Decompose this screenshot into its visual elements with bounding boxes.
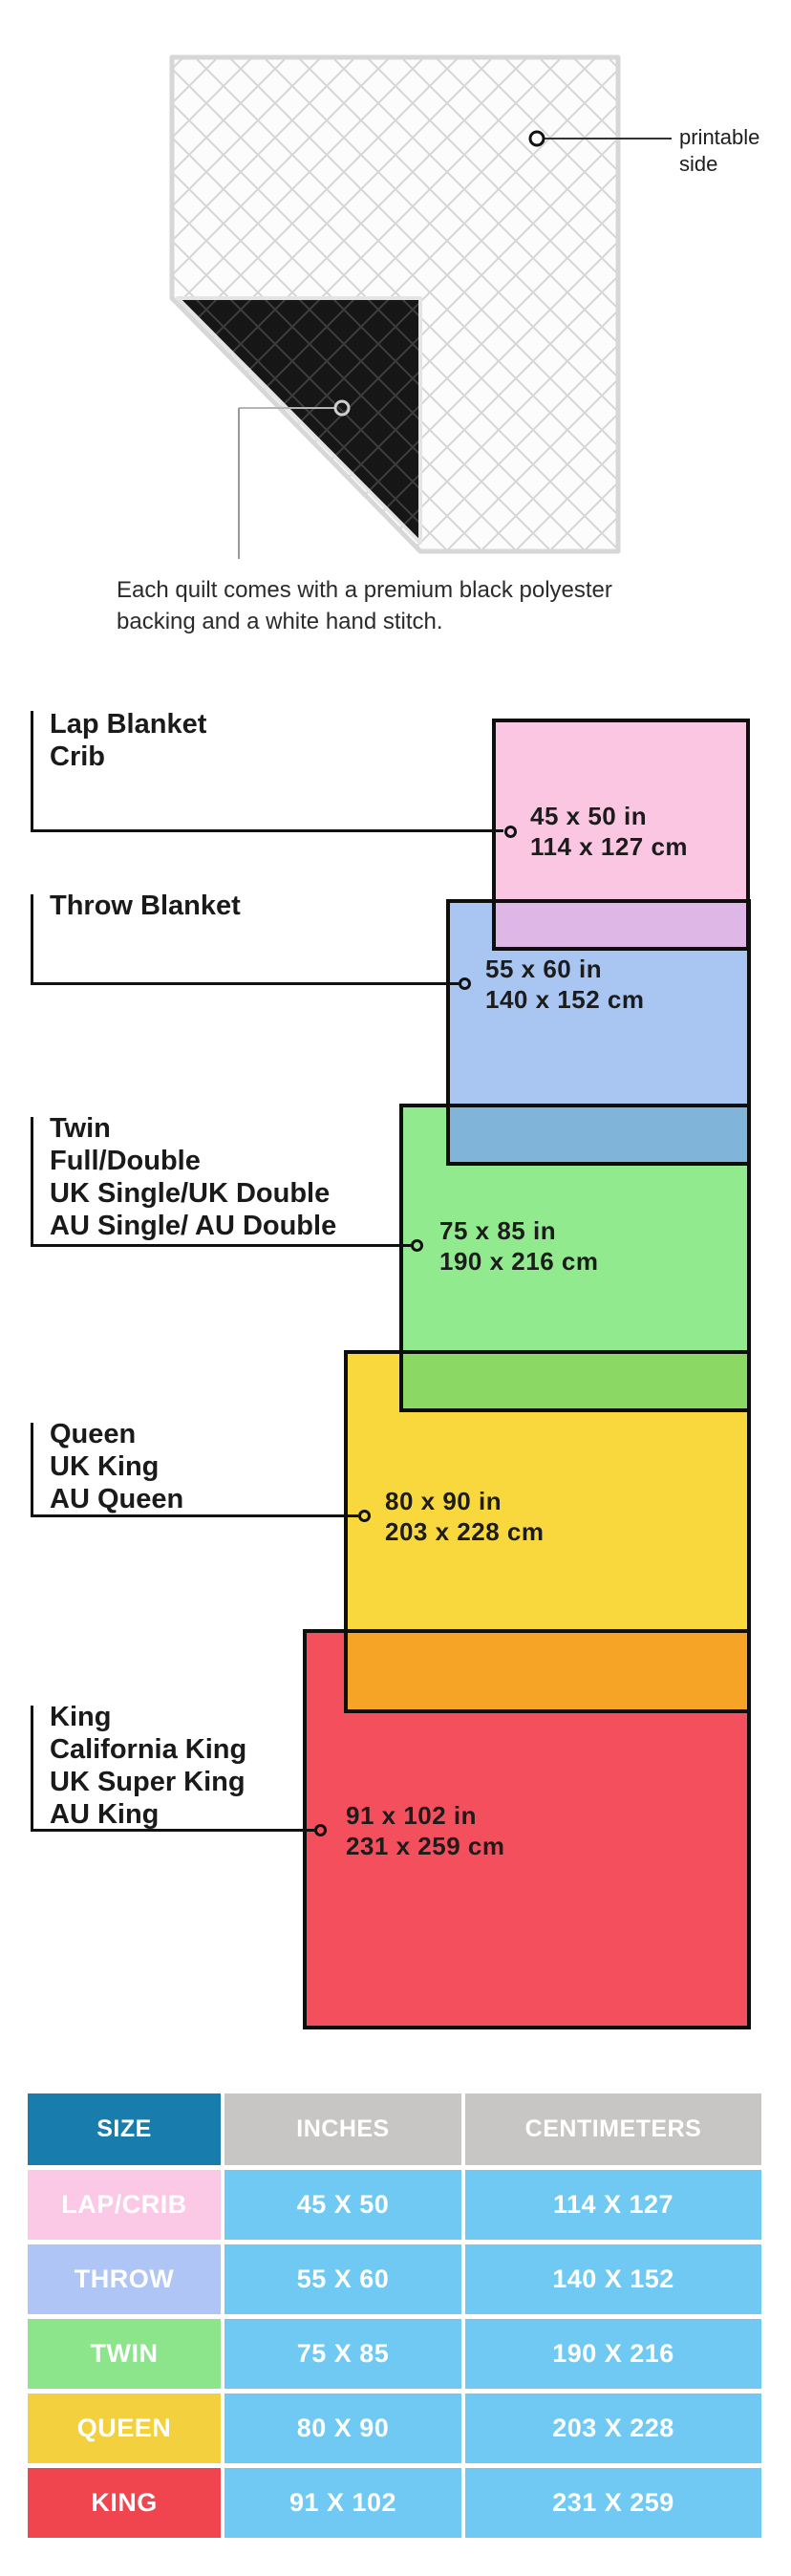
leader-v-lap xyxy=(31,711,33,832)
size-table: SIZE INCHES CENTIMETERS LAP/CRIB 45 X 50… xyxy=(28,2093,761,2538)
label-king: King California King UK Super King AU Ki… xyxy=(50,1701,246,1831)
leader-v-queen xyxy=(31,1423,33,1517)
quilt-caption: Each quilt comes with a premium black po… xyxy=(117,574,612,637)
leader-dot-twin xyxy=(411,1239,423,1252)
table-cell-cm: 140 X 152 xyxy=(465,2244,761,2314)
table-row-size-lap-crib: LAP/CRIB xyxy=(28,2170,221,2240)
quilt-illustration xyxy=(0,0,791,669)
table-header-inches: INCHES xyxy=(224,2093,461,2165)
dims-king: 91 x 102 in 231 x 259 cm xyxy=(346,1800,504,1861)
table-row-size-twin: TWIN xyxy=(28,2319,221,2389)
quilt-backing-fold xyxy=(178,298,420,543)
table-row-size-queen: QUEEN xyxy=(28,2394,221,2463)
leader-v-king xyxy=(31,1706,33,1832)
label-queen: Queen UK King AU Queen xyxy=(50,1418,183,1515)
dims-lap-crib: 45 x 50 in 114 x 127 cm xyxy=(530,801,688,862)
label-throw: Throw Blanket xyxy=(50,890,241,922)
table-cell-inches: 75 X 85 xyxy=(224,2319,461,2389)
label-lap-crib: Lap Blanket Crib xyxy=(50,708,206,773)
table-cell-inches: 91 X 102 xyxy=(224,2468,461,2538)
table-cell-cm: 190 X 216 xyxy=(465,2319,761,2389)
printable-side-label: printable side xyxy=(679,124,791,178)
leader-h-king xyxy=(31,1829,314,1832)
table-header-centimeters: CENTIMETERS xyxy=(465,2093,761,2165)
leader-dot-queen xyxy=(358,1510,371,1522)
table-cell-cm: 231 X 259 xyxy=(465,2468,761,2538)
dims-twin: 75 x 85 in 190 x 216 cm xyxy=(439,1215,598,1277)
leader-dot-throw xyxy=(459,977,471,990)
table-cell-cm: 203 X 228 xyxy=(465,2394,761,2463)
leader-dot-lap xyxy=(504,826,517,838)
leader-v-twin xyxy=(31,1117,33,1247)
table-row-size-king: KING xyxy=(28,2468,221,2538)
table-row-size-throw: THROW xyxy=(28,2244,221,2314)
leader-h-throw xyxy=(31,982,459,985)
dims-throw: 55 x 60 in 140 x 152 cm xyxy=(485,954,644,1015)
label-twin: Twin Full/Double UK Single/UK Double AU … xyxy=(50,1112,336,1242)
leader-h-twin xyxy=(31,1244,411,1247)
leader-h-queen xyxy=(31,1514,358,1517)
table-header-size: SIZE xyxy=(28,2093,221,2165)
infographic-page: printable side Each quilt comes with a p… xyxy=(0,0,791,2576)
table-cell-cm: 114 X 127 xyxy=(465,2170,761,2240)
leader-h-lap xyxy=(31,829,503,832)
dims-queen: 80 x 90 in 203 x 228 cm xyxy=(385,1486,544,1547)
table-cell-inches: 55 X 60 xyxy=(224,2244,461,2314)
table-cell-inches: 80 X 90 xyxy=(224,2394,461,2463)
leader-dot-king xyxy=(314,1824,327,1836)
leader-v-throw xyxy=(31,894,33,985)
table-cell-inches: 45 X 50 xyxy=(224,2170,461,2240)
